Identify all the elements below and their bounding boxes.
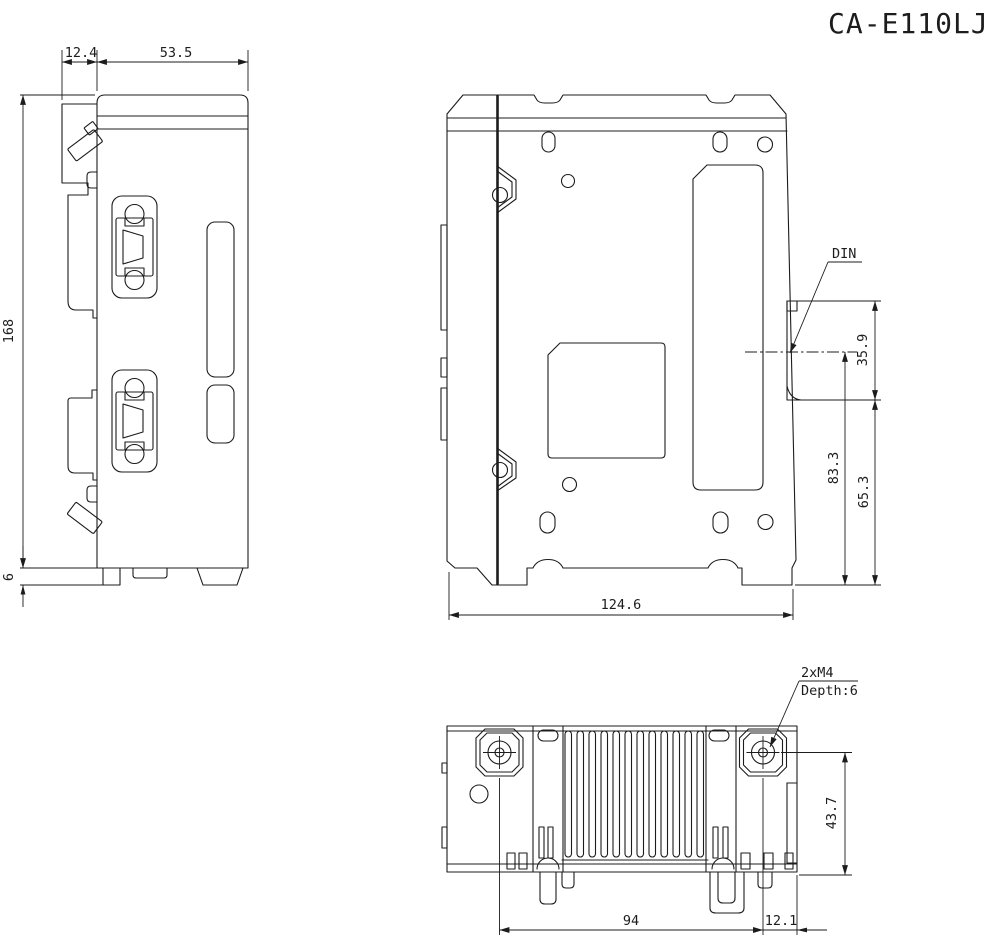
dim-35-9: 35.9: [855, 334, 871, 367]
dim-83-3: 83.3: [826, 452, 842, 485]
comb-teeth: [507, 853, 793, 869]
side-view-body: [97, 95, 248, 585]
bottom-feet: [540, 872, 772, 913]
screw-depth-label: Depth:6: [801, 683, 858, 699]
side-slot-short: [207, 385, 234, 443]
dimension-width: 124.6: [449, 572, 793, 620]
bracket-right: [706, 726, 736, 872]
dsub-connector-bottom: [112, 370, 157, 472]
dim-53-5: 53.5: [160, 45, 193, 61]
dim-12-1: 12.1: [765, 913, 798, 929]
dim-94: 94: [623, 913, 639, 929]
side-slot-long: [207, 222, 234, 377]
hinge-notch-upper: [493, 166, 517, 213]
screw-boss-left: [476, 729, 523, 776]
dim-6: 6: [1, 573, 17, 581]
side-foot-middle: [133, 568, 167, 578]
technical-drawing-page: CA-E110LJ: [0, 0, 1000, 946]
back-left-tab-2: [441, 358, 447, 377]
screw-boss-right: [740, 729, 787, 776]
dim-43-7: 43.7: [824, 797, 840, 830]
dimensional-drawing: CA-E110LJ: [0, 0, 1000, 946]
din-callout: DIN: [790, 246, 862, 353]
dimension-screw-to-bottom: 43.7: [781, 753, 852, 876]
side-foot-right: [197, 568, 243, 585]
dimension-din-height: 35.9: [855, 301, 875, 400]
dimension-clip-depth: 12.4 53.5: [62, 45, 248, 100]
side-view: 12.4 53.5 168 6: [1, 45, 248, 607]
back-view-outline: [447, 95, 796, 585]
dsub-connector-top: [112, 196, 157, 298]
dim-124-6: 124.6: [601, 597, 642, 613]
bottom-view: 2xM4 Depth:6 43.7 94 12.1: [442, 665, 858, 935]
dimension-height: 168: [1, 95, 97, 568]
heatsink-pad: [548, 343, 665, 458]
back-left-tab-3: [441, 388, 447, 440]
back-mount-holes: [540, 132, 773, 533]
dim-12-4: 12.4: [65, 45, 98, 61]
back-view: DIN 35.9 83.3 65.3 124.6: [441, 95, 881, 620]
dimension-foot-height: 6: [1, 546, 103, 607]
back-left-tab-1: [441, 225, 447, 330]
din-label: DIN: [832, 246, 856, 262]
right-channel: [693, 165, 763, 490]
dimension-din-bottom-to-bottom: 65.3: [856, 400, 875, 585]
side-tab-lower: [87, 486, 97, 502]
dim-65-3: 65.3: [856, 476, 872, 509]
bracket-left: [533, 726, 563, 872]
hinge-notch-lower: [493, 448, 517, 491]
heatsink-fins: [562, 731, 708, 860]
dim-168: 168: [1, 319, 17, 343]
din-tab-edge: [787, 783, 797, 863]
bottom-left-tab-2: [442, 827, 447, 848]
drawing-title: CA-E110LJ: [828, 7, 989, 40]
din-clip-lower: [68, 390, 97, 480]
bottom-left-tab-1: [442, 763, 447, 773]
dimension-din-center-to-bottom: 83.3: [795, 352, 881, 585]
side-foot-left: [103, 568, 120, 585]
din-clip-upper: [62, 104, 97, 318]
release-latch-upper: [63, 121, 106, 161]
screw-spec-label: 2xM4: [801, 665, 834, 681]
bottom-hole: [470, 785, 488, 803]
